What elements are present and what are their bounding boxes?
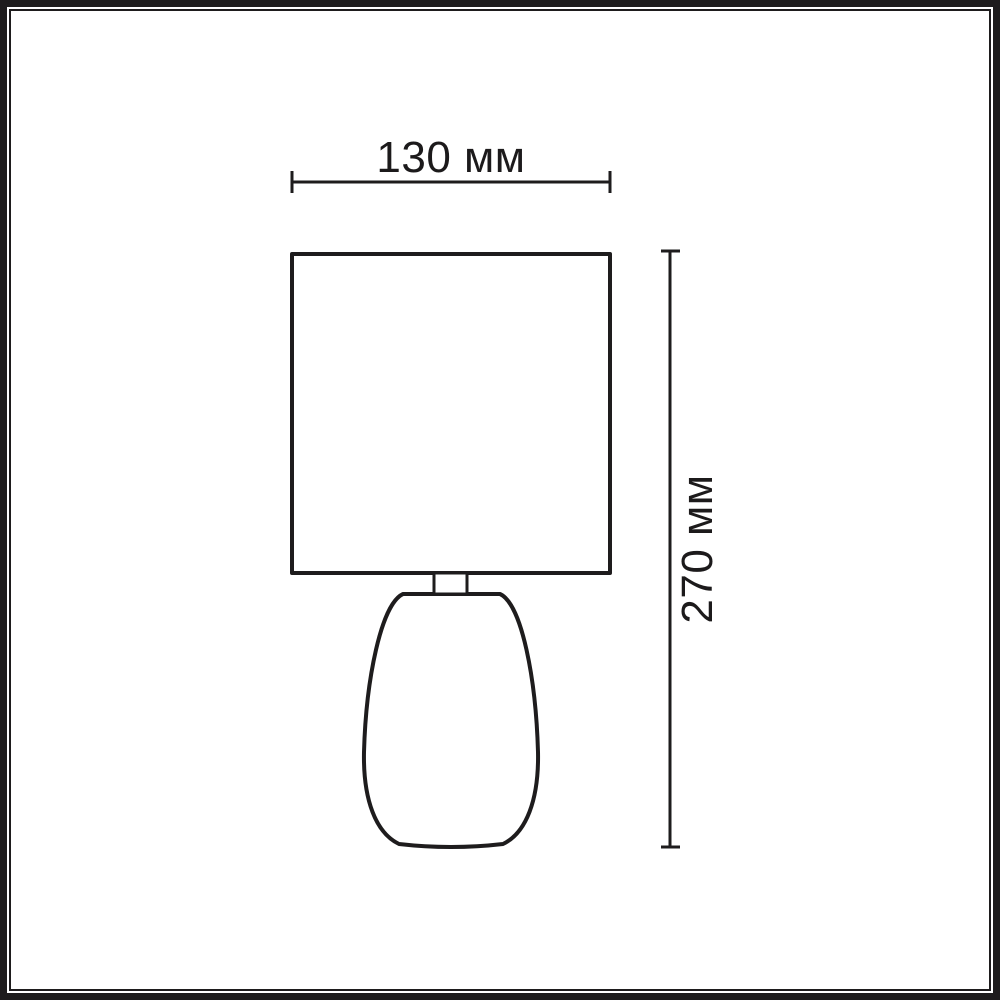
lamp-neck <box>434 573 467 594</box>
lamp-drawing: 130 мм 270 мм <box>0 0 1000 1000</box>
height-dimension-label: 270 мм <box>673 474 722 623</box>
width-dimension-label: 130 мм <box>376 133 525 182</box>
lamp-base <box>364 594 538 847</box>
lamp-shade <box>292 254 610 573</box>
dimension-diagram: 130 мм 270 мм <box>0 0 1000 1000</box>
